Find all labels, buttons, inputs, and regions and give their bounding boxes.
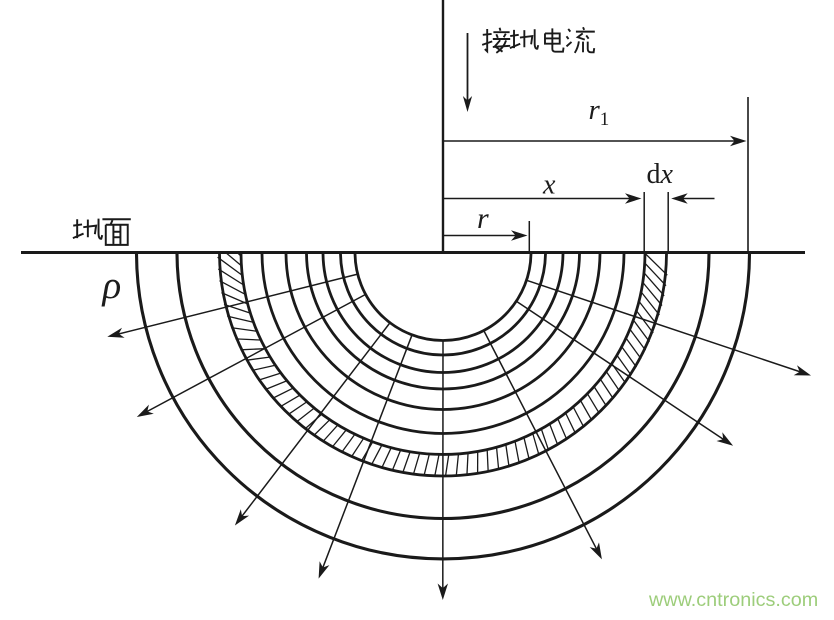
svg-text:ρ: ρ xyxy=(102,264,122,307)
svg-text:dx: dx xyxy=(647,159,674,190)
svg-text:www.cntronics.com: www.cntronics.com xyxy=(648,589,818,611)
svg-text:x: x xyxy=(542,170,556,201)
svg-text:r1: r1 xyxy=(589,94,610,130)
svg-text:r: r xyxy=(477,202,489,235)
